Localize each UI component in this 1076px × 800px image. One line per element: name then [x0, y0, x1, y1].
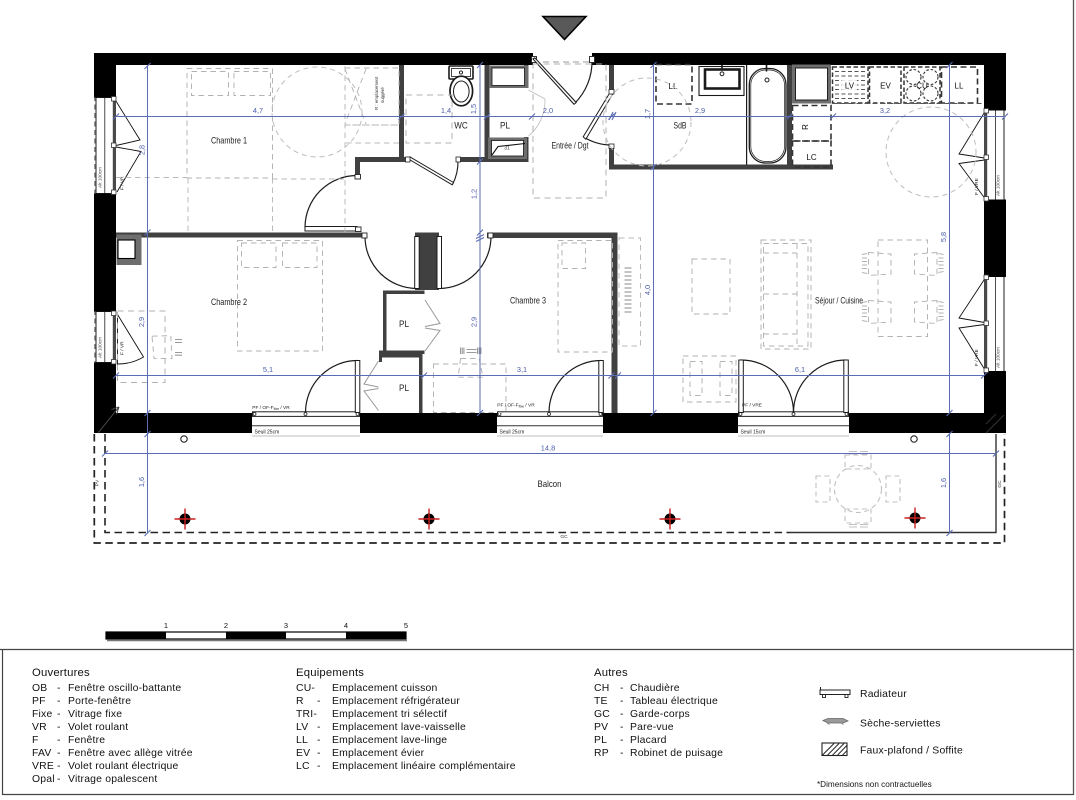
svg-text:5: 5 [404, 621, 408, 630]
svg-text:1: 1 [164, 621, 168, 630]
svg-text:2,9: 2,9 [137, 317, 146, 327]
svg-text:Emplacement linéaire complémen: Emplacement linéaire complémentaire [332, 761, 516, 772]
svg-text:F: F [32, 735, 39, 746]
svg-text:Placard: Placard [630, 735, 667, 746]
svg-text:GC: GC [997, 480, 1003, 488]
svg-text:Fenêtre avec allège vitrée: Fenêtre avec allège vitrée [68, 748, 193, 759]
svg-text:Emplacement lave-linge: Emplacement lave-linge [332, 735, 447, 746]
svg-text:Seuil 25cm: Seuil 25cm [500, 430, 525, 436]
svg-text:Porte-fenêtre: Porte-fenêtre [68, 696, 131, 707]
svg-text:-: - [57, 709, 61, 720]
svg-text:Vitrage fixe: Vitrage fixe [68, 709, 122, 720]
svg-text:PF: PF [32, 696, 46, 707]
svg-text:Sèche-serviettes: Sèche-serviettes [860, 719, 941, 730]
svg-text:PF / OF-Ffixe / VR: PF / OF-Ffixe / VR [497, 403, 535, 409]
svg-text:LV: LV [296, 722, 308, 733]
svg-text:Chambre 2: Chambre 2 [211, 297, 247, 308]
svg-text:Ouvertures: Ouvertures [32, 667, 90, 679]
svg-text:Emplacement évier: Emplacement évier [332, 748, 425, 759]
svg-text:PF / OF-Ffixe / VR: PF / OF-Ffixe / VR [252, 405, 290, 411]
svg-text:2,0: 2,0 [543, 106, 553, 115]
svg-text:4: 4 [344, 621, 348, 630]
svg-text:-: - [57, 774, 61, 785]
svg-text:3,2: 3,2 [880, 106, 890, 115]
svg-text:R: R [296, 696, 304, 707]
svg-text:Chambre 3: Chambre 3 [510, 296, 546, 307]
svg-text:VRE: VRE [32, 761, 54, 772]
svg-text:Fenêtre oscillo-battante: Fenêtre oscillo-battante [68, 683, 181, 694]
svg-text:31: 31 [504, 146, 510, 152]
svg-text:3,1: 3,1 [517, 365, 527, 374]
svg-text:Faux-plafond / Soffite: Faux-plafond / Soffite [860, 746, 963, 757]
svg-text:Séjour / Cuisine: Séjour / Cuisine [815, 296, 863, 307]
svg-text:suggéré: suggéré [380, 87, 385, 103]
svg-text:Vitrage opalescent: Vitrage opalescent [68, 774, 157, 785]
svg-text:PL: PL [399, 319, 409, 330]
svg-text:LC: LC [296, 761, 310, 772]
svg-text:VR: VR [32, 722, 47, 733]
svg-text:F / VR: F / VR [120, 341, 126, 355]
svg-text:FAV: FAV [32, 748, 51, 759]
svg-text:TE: TE [594, 696, 608, 707]
svg-text:Alt 100cm: Alt 100cm [98, 337, 103, 358]
svg-text:2,9: 2,9 [695, 106, 705, 115]
svg-text:-: - [317, 696, 321, 707]
svg-text:LL: LL [296, 735, 308, 746]
svg-text:Pare-vue: Pare-vue [630, 722, 674, 733]
svg-text:OB: OB [32, 683, 47, 694]
svg-text:Fixe: Fixe [32, 709, 52, 720]
svg-text:2: 2 [224, 621, 228, 630]
svg-text:EV: EV [296, 748, 310, 759]
svg-text:-: - [620, 683, 624, 694]
svg-text:Equipements: Equipements [296, 667, 364, 679]
svg-text:Opal: Opal [32, 774, 55, 785]
svg-text:*Dimensions non contractuelles: *Dimensions non contractuelles [817, 780, 932, 789]
svg-text:EV: EV [880, 82, 891, 91]
svg-text:PV: PV [95, 479, 101, 486]
svg-text:-: - [620, 709, 624, 720]
svg-text:2,9: 2,9 [470, 317, 479, 327]
svg-text:F / VRE: F / VRE [974, 178, 980, 195]
svg-text:-: - [57, 683, 61, 694]
svg-text:-: - [317, 735, 321, 746]
svg-text:R : emplacement: R : emplacement [374, 76, 379, 110]
svg-text:CU-: CU- [296, 683, 315, 694]
svg-text:GC: GC [594, 709, 610, 720]
svg-text:-: - [317, 761, 321, 772]
svg-text:Alt 100cm: Alt 100cm [98, 167, 103, 188]
svg-text:F / VR: F / VR [120, 176, 126, 190]
svg-text:RP: RP [594, 748, 609, 759]
svg-text:PL: PL [500, 121, 510, 132]
svg-text:Entrée / Dgt: Entrée / Dgt [552, 141, 589, 152]
svg-text:TRI-: TRI- [296, 709, 317, 720]
svg-text:-: - [317, 748, 321, 759]
svg-text:Emplacement réfrigérateur: Emplacement réfrigérateur [332, 696, 460, 707]
svg-text:Balcon: Balcon [538, 479, 562, 490]
svg-text:Tableau électrique: Tableau électrique [630, 696, 718, 707]
svg-text:5,8: 5,8 [939, 232, 948, 242]
svg-text:WC: WC [454, 121, 468, 132]
svg-text:CH: CH [594, 683, 609, 694]
svg-text:Seuil 25cm: Seuil 25cm [255, 430, 280, 436]
svg-text:-: - [620, 748, 624, 759]
svg-text:3: 3 [284, 621, 288, 630]
svg-text:Chambre 1: Chambre 1 [211, 136, 247, 147]
svg-text:Emplacement tri sélectif: Emplacement tri sélectif [332, 709, 447, 720]
svg-text:Chaudière: Chaudière [630, 683, 680, 694]
svg-text:-: - [57, 696, 61, 707]
svg-text:GC: GC [560, 534, 568, 540]
svg-text:4,7: 4,7 [253, 106, 263, 115]
svg-text:F / VRE: F / VRE [974, 349, 980, 366]
svg-text:LC: LC [806, 153, 816, 162]
svg-text:1,7: 1,7 [643, 109, 652, 119]
svg-text:Robinet de puisage: Robinet de puisage [630, 748, 723, 759]
svg-text:SdB: SdB [674, 121, 687, 132]
svg-text:1,4: 1,4 [441, 106, 451, 115]
svg-text:Garde-corps: Garde-corps [630, 709, 690, 720]
svg-text:Radiateur: Radiateur [860, 689, 907, 700]
svg-text:2,8: 2,8 [138, 145, 147, 155]
svg-text:1,6: 1,6 [137, 477, 146, 487]
svg-text:-: - [317, 722, 321, 733]
svg-text:1,5: 1,5 [469, 104, 478, 114]
svg-text:PL: PL [594, 735, 607, 746]
svg-text:R: R [801, 124, 810, 130]
svg-text:Alt 100cm: Alt 100cm [996, 175, 1001, 196]
svg-text:-: - [57, 761, 61, 772]
svg-text:PL: PL [399, 383, 409, 394]
svg-text:14,8: 14,8 [541, 444, 555, 453]
svg-text:LL: LL [955, 82, 964, 91]
svg-text:6,1: 6,1 [795, 365, 805, 374]
svg-text:CU: CU [916, 82, 928, 91]
svg-text:-: - [57, 735, 61, 746]
svg-text:Alt 100cm: Alt 100cm [996, 347, 1001, 368]
svg-text:1,2: 1,2 [470, 189, 479, 199]
svg-text:1,6: 1,6 [939, 478, 948, 488]
svg-text:-: - [620, 722, 624, 733]
svg-text:PV: PV [594, 722, 608, 733]
svg-text:Seuil 15cm: Seuil 15cm [741, 430, 766, 436]
svg-text:-: - [620, 696, 624, 707]
svg-text:-: - [57, 722, 61, 733]
svg-text:4,0: 4,0 [643, 285, 652, 295]
svg-text:PF / VRE: PF / VRE [742, 403, 762, 409]
svg-text:Volet roulant: Volet roulant [68, 722, 128, 733]
svg-text:5,1: 5,1 [263, 365, 273, 374]
svg-text:-: - [620, 735, 624, 746]
svg-text:-: - [57, 748, 61, 759]
svg-text:Emplacement lave-vaisselle: Emplacement lave-vaisselle [332, 722, 466, 733]
svg-text:LV: LV [845, 82, 855, 91]
svg-text:Autres: Autres [594, 667, 628, 679]
svg-text:Volet roulant électrique: Volet roulant électrique [68, 761, 179, 772]
svg-text:Fenêtre: Fenêtre [68, 735, 105, 746]
svg-text:Emplacement cuisson: Emplacement cuisson [332, 683, 437, 694]
